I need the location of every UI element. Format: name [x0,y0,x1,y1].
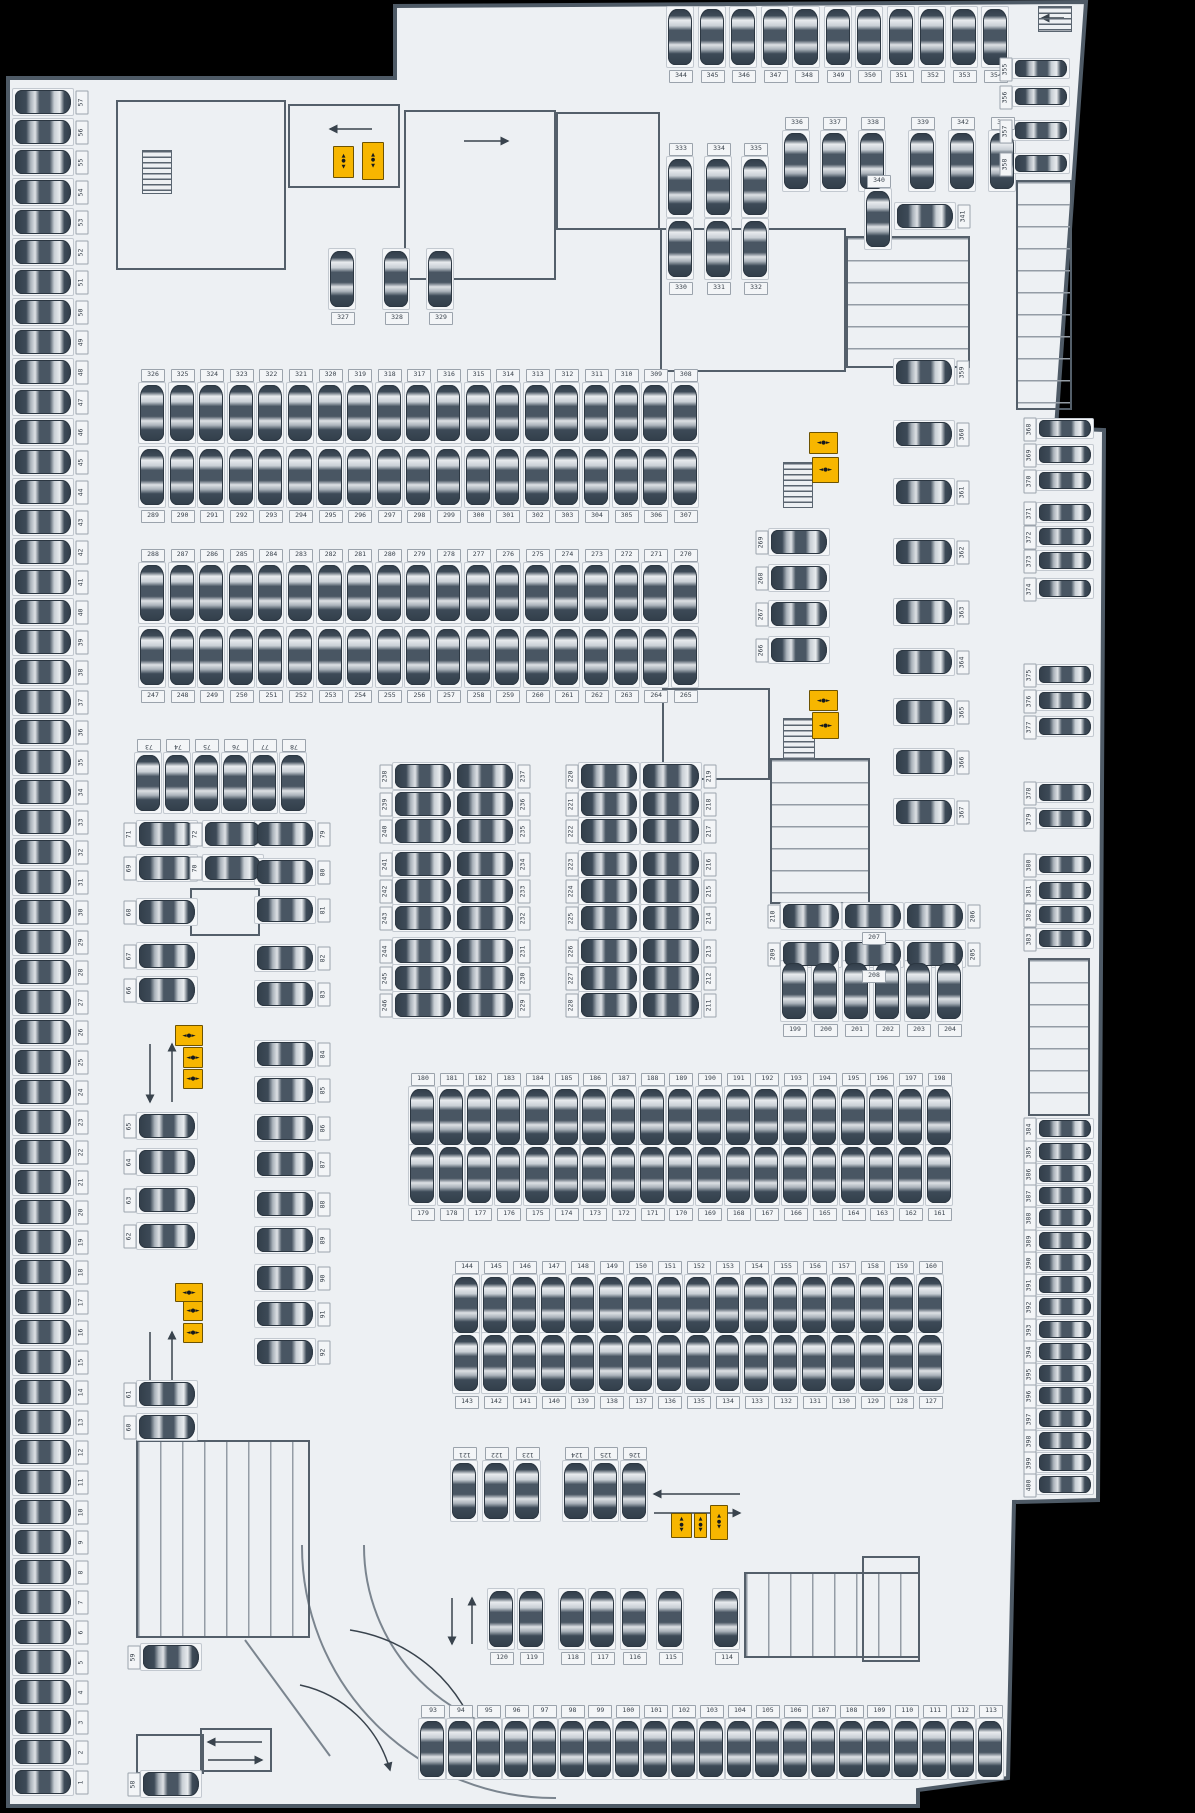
spot-label: 169 [698,1208,722,1221]
car-icon [927,1147,951,1203]
spot-label: 248 [171,690,195,703]
spot-label: 132 [774,1396,798,1409]
spot-label: 163 [870,1208,894,1221]
spot-label: 250 [230,690,254,703]
car-icon [1039,1454,1091,1471]
lift-horizontal-icon: ◄●► [183,1047,203,1068]
car-icon [15,270,71,294]
car-icon [257,1042,313,1066]
car-icon [1039,446,1091,463]
spot-label: 199 [783,1024,807,1037]
spot-label: 50 [76,301,89,325]
spot-label: 128 [890,1396,914,1409]
spot-label: 90 [318,1267,331,1291]
spot-label: 387 [1024,1184,1037,1208]
car-icon [1039,1321,1091,1338]
spot-label: 183 [497,1073,521,1086]
spot-label: 36 [76,721,89,745]
car-icon [15,1230,71,1254]
car-icon [857,9,881,65]
spot-label: 340 [867,175,891,188]
lift-horizontal-icon: ◄●► [812,712,839,739]
spot-label: 168 [727,1208,751,1221]
spot-label: 127 [919,1396,943,1409]
car-icon [496,1147,520,1203]
spot-label: 308 [674,369,698,382]
car-icon [318,449,342,505]
spot-label: 274 [555,549,579,562]
car-icon [1039,1410,1091,1427]
spot-label: 89 [318,1229,331,1253]
spot-label: 162 [899,1208,923,1221]
room [770,758,870,904]
spot-label: 104 [728,1705,752,1718]
car-icon [614,565,638,621]
spot-label: 295 [319,510,343,523]
car-icon [587,1721,611,1777]
spot-label: 34 [76,781,89,805]
car-icon [519,1591,543,1647]
car-icon [15,600,71,624]
car-icon [554,449,578,505]
spot-label: 96 [505,1705,529,1718]
car-icon [773,1335,797,1391]
car-icon [831,1335,855,1391]
car-icon [288,629,312,685]
car-icon [476,1721,500,1777]
car-icon [139,1224,195,1248]
spot-label: 327 [331,312,355,325]
car-icon [525,449,549,505]
spot-label: 251 [259,690,283,703]
car-icon [937,963,961,1019]
spot-label: 79 [318,823,331,847]
spot-label: 268 [756,567,769,591]
spot-label: 304 [585,510,609,523]
car-icon [15,150,71,174]
spot-label: 273 [585,549,609,562]
car-icon [643,1721,667,1777]
car-icon [257,1152,313,1176]
car-icon [782,963,806,1019]
spot-label: 378 [1024,781,1037,805]
spot-label: 298 [407,510,431,523]
car-icon [593,1463,617,1519]
spot-label: 342 [951,117,975,130]
room [136,1734,204,1774]
spot-label: 331 [707,282,731,295]
spot-label: 368 [1024,417,1037,441]
spot-label: 100 [616,1705,640,1718]
car-icon [643,939,699,963]
car-icon [611,1147,635,1203]
car-icon [318,385,342,441]
spot-label: 219 [704,765,717,789]
spot-label: 24 [76,1081,89,1105]
spot-label: 137 [629,1396,653,1409]
car-icon [406,629,430,685]
car-icon [512,1335,536,1391]
car-icon [15,660,71,684]
spot-label: 182 [468,1073,492,1086]
spot-label: 275 [526,549,550,562]
car-icon [673,449,697,505]
car-icon [754,1089,778,1145]
spot-label: 133 [745,1396,769,1409]
stairs-icon [1038,6,1072,32]
spot-label: 303 [555,510,579,523]
car-icon [288,449,312,505]
spot-label: 237 [518,765,531,789]
car-icon [744,1277,768,1333]
spot-label: 241 [380,853,393,877]
car-icon [743,221,767,277]
spot-label: 346 [732,70,756,83]
spot-label: 125 [594,1447,618,1460]
car-icon [452,1463,476,1519]
car-icon [755,1721,779,1777]
spot-label: 196 [870,1073,894,1086]
car-icon [229,385,253,441]
spot-label: 87 [318,1153,331,1177]
spot-label: 126 [623,1447,647,1460]
spot-label: 336 [785,117,809,130]
car-icon [896,422,952,446]
spot-label: 190 [698,1073,722,1086]
spot-label: 177 [468,1208,492,1221]
car-icon [395,966,451,990]
lift-horizontal-icon: ◄●► [809,690,838,711]
car-icon [457,852,513,876]
spot-label: 292 [230,510,254,523]
car-icon [410,1147,434,1203]
room [1016,180,1072,410]
spot-label: 156 [803,1261,827,1274]
spot-label: 384 [1024,1117,1037,1141]
car-icon [896,800,952,824]
car-icon [15,510,71,534]
car-icon [927,1089,951,1145]
spot-label: 85 [318,1079,331,1103]
room [190,888,260,936]
car-icon [1039,1120,1091,1137]
spot-label: 376 [1024,689,1037,713]
car-icon [136,755,160,811]
spot-label: 184 [526,1073,550,1086]
spot-label: 141 [513,1396,537,1409]
car-icon [907,904,963,928]
spot-label: 93 [421,1705,445,1718]
car-icon [140,565,164,621]
spot-label: 347 [764,70,788,83]
spot-label: 277 [467,549,491,562]
spot-label: 382 [1024,903,1037,927]
car-icon [554,1147,578,1203]
spot-label: 392 [1024,1295,1037,1319]
car-icon [15,1380,71,1404]
car-icon [1039,906,1091,923]
car-icon [170,629,194,685]
car-icon [139,900,195,924]
car-icon [15,180,71,204]
car-icon [229,565,253,621]
car-icon [822,133,846,189]
car-icon [15,1260,71,1284]
spot-label: 152 [687,1261,711,1274]
car-icon [860,1335,884,1391]
car-icon [686,1335,710,1391]
spot-label: 309 [644,369,668,382]
car-icon [436,629,460,685]
car-icon [454,1335,478,1391]
car-icon [170,565,194,621]
car-icon [1039,1276,1091,1293]
spot-label: 16 [76,1321,89,1345]
car-icon [15,930,71,954]
car-icon [1039,1143,1091,1160]
car-icon [140,629,164,685]
spot-label: 155 [774,1261,798,1274]
spot-label: 269 [756,531,769,555]
spot-label: 230 [518,967,531,991]
car-icon [918,1277,942,1333]
car-icon [496,1089,520,1145]
spot-label: 110 [895,1705,919,1718]
spot-label: 28 [76,961,89,985]
car-icon [257,1116,313,1140]
car-icon [15,960,71,984]
car-icon [257,1340,313,1364]
car-icon [1039,1254,1091,1271]
spot-label: 314 [496,369,520,382]
car-icon [715,1277,739,1333]
car-icon [727,1721,751,1777]
spot-label: 267 [756,603,769,627]
spot-label: 170 [669,1208,693,1221]
spot-label: 351 [890,70,914,83]
spot-label: 333 [669,143,693,156]
spot-label: 266 [756,639,769,663]
spot-label: 181 [440,1073,464,1086]
spot-label: 360 [957,423,970,447]
spot-label: 2 [76,1741,89,1765]
room [1028,958,1090,1116]
car-icon [581,819,637,843]
car-icon [668,1089,692,1145]
car-icon [906,963,930,1019]
spot-label: 1 [76,1771,89,1795]
spot-label: 29 [76,931,89,955]
spot-label: 357 [1000,119,1013,143]
spot-label: 358 [1000,152,1013,176]
spot-label: 180 [411,1073,435,1086]
car-icon [599,1335,623,1391]
car-icon [839,1721,863,1777]
car-icon [229,449,253,505]
car-icon [831,1277,855,1333]
spot-label: 192 [755,1073,779,1086]
car-icon [640,1147,664,1203]
spot-label: 17 [76,1291,89,1315]
spot-label: 391 [1024,1273,1037,1297]
car-icon [15,120,71,144]
car-icon [15,330,71,354]
spot-label: 144 [455,1261,479,1274]
lift-horizontal-icon: ◄●► [175,1025,203,1046]
spot-label: 323 [230,369,254,382]
car-icon [1039,1476,1091,1493]
car-icon [457,764,513,788]
spot-label: 253 [319,690,343,703]
car-icon [614,629,638,685]
spot-label: 243 [380,907,393,931]
spot-label: 119 [520,1652,544,1665]
car-icon [15,1080,71,1104]
car-icon [581,879,637,903]
car-icon [457,879,513,903]
spot-label: 302 [526,510,550,523]
spot-label: 220 [566,765,579,789]
car-icon [139,1150,195,1174]
spot-label: 198 [928,1073,952,1086]
spot-label: 159 [890,1261,914,1274]
car-icon [15,90,71,114]
spot-label: 44 [76,481,89,505]
spot-label: 209 [768,943,781,967]
car-icon [288,385,312,441]
spot-label: 375 [1024,663,1037,687]
spot-label: 42 [76,541,89,565]
car-icon [1039,882,1091,899]
car-icon [1039,692,1091,709]
spot-label: 212 [704,967,717,991]
car-icon [15,1470,71,1494]
spot-label: 136 [658,1396,682,1409]
spot-label: 272 [615,549,639,562]
spot-label: 78 [282,739,306,752]
car-icon [466,449,490,505]
car-icon [495,565,519,621]
spot-label: 70 [190,857,203,881]
car-icon [615,1721,639,1777]
spot-label: 118 [561,1652,585,1665]
car-icon [896,750,952,774]
car-icon [657,1277,681,1333]
car-icon [395,852,451,876]
car-icon [199,565,223,621]
car-icon [457,819,513,843]
spot-label: 260 [526,690,550,703]
spot-label: 211 [704,994,717,1018]
spot-label: 318 [378,369,402,382]
spot-label: 166 [784,1208,808,1221]
car-icon [139,1415,195,1439]
car-icon [15,840,71,864]
spot-label: 124 [565,1447,589,1460]
car-icon [628,1277,652,1333]
car-icon [466,385,490,441]
spot-label: 285 [230,549,254,562]
spot-label: 334 [707,143,731,156]
spot-label: 239 [380,793,393,817]
car-icon [771,530,827,554]
car-icon [199,629,223,685]
spot-label: 330 [669,282,693,295]
car-icon [525,565,549,621]
spot-label: 380 [1024,853,1037,877]
spot-label: 397 [1024,1407,1037,1431]
car-icon [896,480,952,504]
car-icon [570,1277,594,1333]
car-icon [1039,1209,1091,1226]
spot-label: 236 [518,793,531,817]
car-icon [15,1290,71,1314]
car-icon [706,221,730,277]
car-icon [467,1147,491,1203]
car-icon [495,629,519,685]
spot-label: 221 [566,793,579,817]
spot-label: 210 [768,905,781,929]
spot-label: 299 [437,510,461,523]
car-icon [15,1710,71,1734]
spot-label: 129 [861,1396,885,1409]
car-icon [622,1463,646,1519]
spot-label: 265 [674,690,698,703]
car-icon [15,990,71,1014]
car-icon [15,630,71,654]
spot-label: 56 [76,121,89,145]
car-icon [564,1463,588,1519]
spot-label: 148 [571,1261,595,1274]
car-icon [484,1463,508,1519]
spot-label: 231 [518,940,531,964]
car-icon [15,360,71,384]
spot-label: 377 [1024,715,1037,739]
car-icon [258,449,282,505]
car-icon [406,449,430,505]
car-icon [584,629,608,685]
car-icon [952,9,976,65]
spot-label: 173 [583,1208,607,1221]
spot-label: 386 [1024,1162,1037,1186]
car-icon [223,755,247,811]
car-icon [918,1335,942,1391]
spot-label: 216 [704,853,717,877]
spot-label: 94 [449,1705,473,1718]
spot-label: 48 [76,361,89,385]
spot-label: 364 [957,651,970,675]
car-icon [668,9,692,65]
car-icon [1039,1298,1091,1315]
spot-label: 234 [518,853,531,877]
car-icon [377,449,401,505]
room [862,1556,920,1662]
car-icon [560,1591,584,1647]
spot-label: 301 [496,510,520,523]
car-icon [668,221,692,277]
spot-label: 329 [429,312,453,325]
spot-label: 359 [957,361,970,385]
car-icon [1039,504,1091,521]
car-icon [257,1228,313,1252]
car-icon [628,1335,652,1391]
spot-label: 27 [76,991,89,1015]
spot-label: 335 [744,143,768,156]
car-icon [15,450,71,474]
spot-label: 11 [76,1471,89,1495]
spot-label: 69 [124,857,137,881]
spot-label: 13 [76,1411,89,1435]
